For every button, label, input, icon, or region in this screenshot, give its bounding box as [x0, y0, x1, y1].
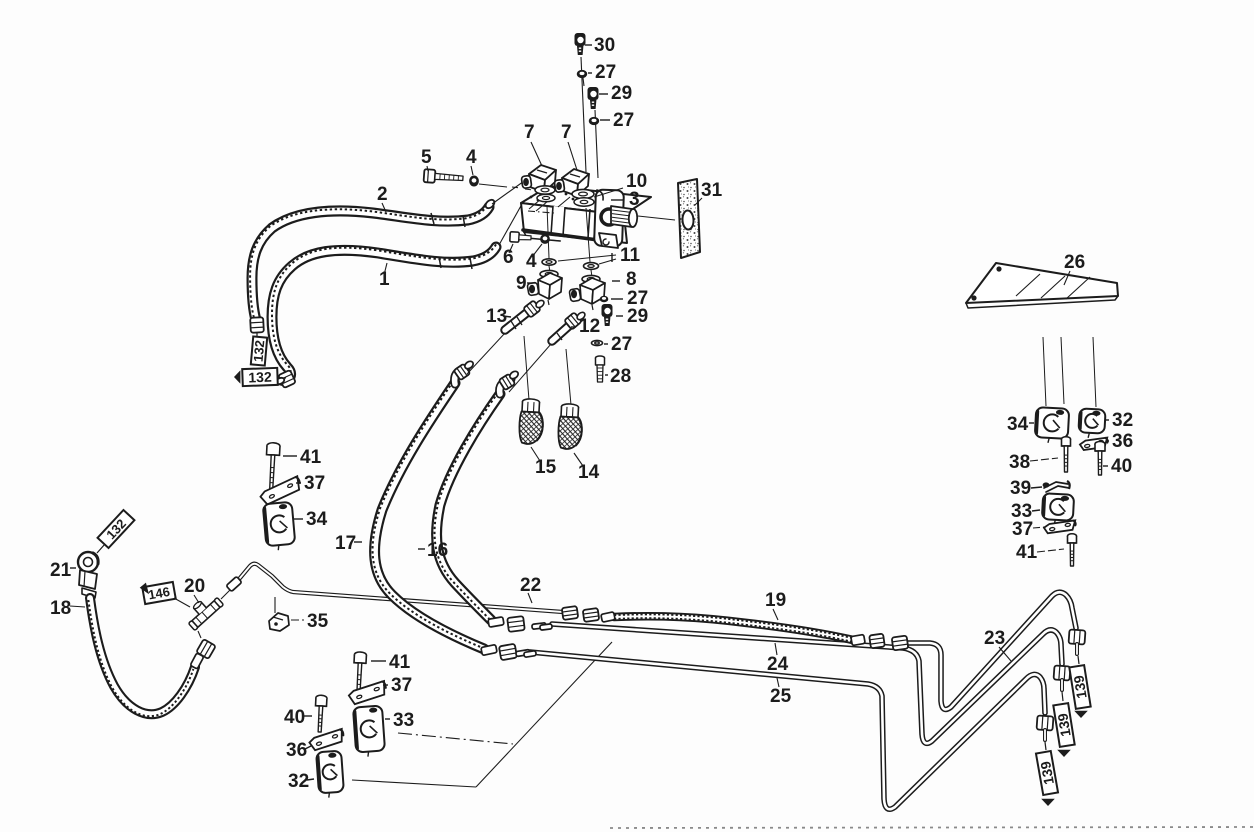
svg-text:8: 8 — [626, 269, 637, 290]
svg-text:4: 4 — [466, 147, 477, 168]
svg-text:22: 22 — [520, 575, 541, 596]
svg-text:15: 15 — [535, 457, 557, 478]
svg-text:132: 132 — [251, 340, 268, 363]
svg-text:26: 26 — [1064, 252, 1085, 273]
svg-text:29: 29 — [611, 83, 632, 104]
svg-text:32: 32 — [288, 771, 309, 792]
svg-text:11: 11 — [620, 245, 641, 266]
svg-text:37: 37 — [391, 675, 412, 696]
svg-text:21: 21 — [50, 560, 72, 581]
svg-text:17: 17 — [335, 533, 356, 554]
svg-text:24: 24 — [767, 654, 789, 675]
svg-text:29: 29 — [627, 306, 648, 327]
svg-text:23: 23 — [984, 628, 1005, 649]
svg-text:32: 32 — [1112, 410, 1133, 431]
svg-text:14: 14 — [578, 462, 600, 483]
svg-text:41: 41 — [300, 447, 322, 468]
svg-text:7: 7 — [524, 122, 535, 143]
svg-text:31: 31 — [701, 180, 723, 201]
svg-text:33: 33 — [393, 710, 414, 731]
svg-text:16: 16 — [427, 540, 448, 561]
svg-text:39: 39 — [1010, 478, 1031, 499]
svg-text:25: 25 — [770, 686, 792, 707]
svg-text:34: 34 — [1007, 414, 1029, 435]
svg-text:36: 36 — [286, 740, 307, 761]
svg-text:38: 38 — [1009, 452, 1030, 473]
svg-text:19: 19 — [765, 590, 786, 611]
svg-text:20: 20 — [184, 576, 205, 597]
svg-text:132: 132 — [248, 369, 272, 386]
svg-text:35: 35 — [307, 611, 329, 632]
svg-text:41: 41 — [1016, 542, 1038, 563]
svg-text:3: 3 — [629, 189, 640, 210]
svg-text:36: 36 — [1112, 431, 1133, 452]
svg-text:2: 2 — [377, 184, 388, 205]
svg-text:27: 27 — [595, 62, 616, 83]
svg-text:40: 40 — [284, 707, 305, 728]
svg-text:27: 27 — [613, 110, 634, 131]
svg-text:9: 9 — [516, 273, 527, 294]
svg-text:4: 4 — [526, 251, 537, 272]
svg-text:6: 6 — [503, 247, 514, 268]
svg-text:37: 37 — [1012, 519, 1033, 540]
svg-text:7: 7 — [561, 122, 572, 143]
svg-text:5: 5 — [421, 147, 432, 168]
svg-text:37: 37 — [304, 473, 325, 494]
svg-text:34: 34 — [306, 509, 328, 530]
svg-text:28: 28 — [610, 366, 631, 387]
svg-text:30: 30 — [594, 35, 615, 56]
svg-text:40: 40 — [1111, 456, 1132, 477]
svg-text:12: 12 — [579, 316, 600, 337]
svg-text:18: 18 — [50, 598, 71, 619]
svg-text:27: 27 — [611, 334, 632, 355]
svg-text:41: 41 — [389, 652, 411, 673]
